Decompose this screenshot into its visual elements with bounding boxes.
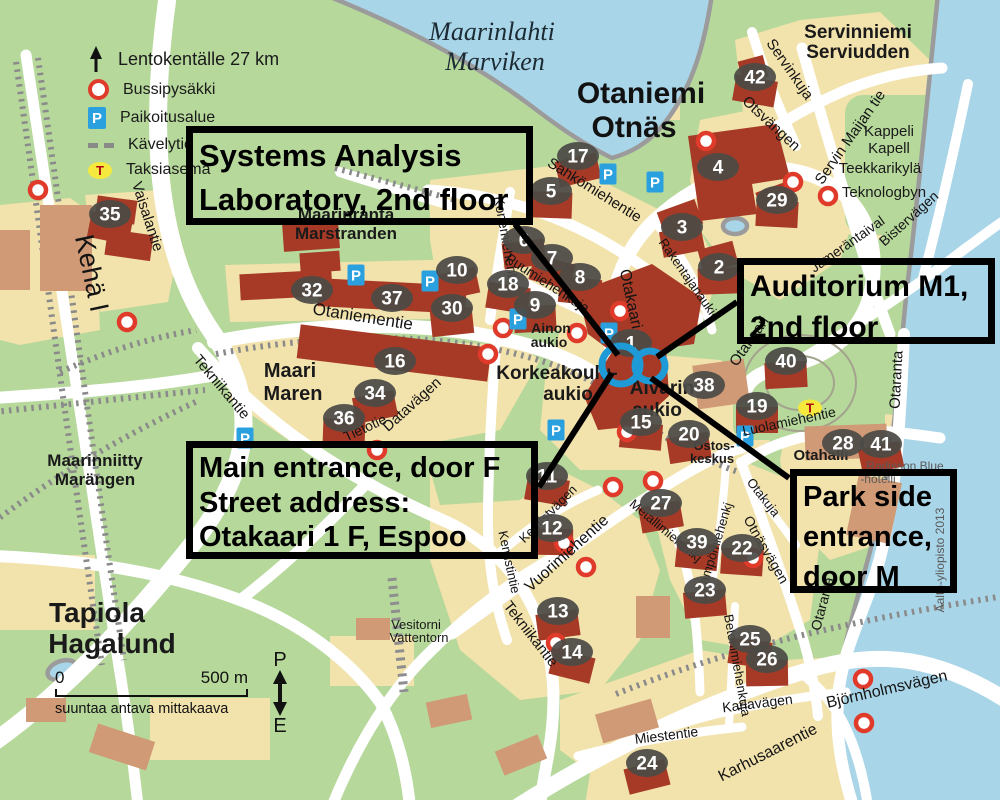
building-marker-13: 13 — [537, 597, 579, 625]
building-marker-39: 39 — [676, 528, 718, 556]
street-label: Otaranta — [886, 350, 906, 410]
building-marker-20: 20 — [668, 420, 710, 448]
svg-text:P: P — [551, 423, 561, 440]
svg-text:30: 30 — [441, 299, 462, 320]
svg-text:5: 5 — [546, 182, 557, 203]
bus-stop-icon — [569, 325, 585, 341]
north-arrow-icon — [88, 46, 104, 72]
building-marker-15: 15 — [620, 408, 662, 436]
bus-stop-icon — [578, 559, 594, 575]
svg-text:27: 27 — [650, 494, 671, 515]
svg-text:P: P — [425, 274, 435, 291]
building-marker-10: 10 — [436, 256, 478, 284]
svg-text:41: 41 — [870, 435, 892, 456]
svg-text:37: 37 — [381, 289, 402, 310]
place-label: Tapiola — [49, 597, 145, 628]
svg-text:12: 12 — [541, 519, 562, 540]
place-label: aukio — [543, 384, 593, 405]
building-marker-22: 22 — [721, 534, 763, 562]
place-label: Maren — [264, 383, 323, 405]
callout-line: 2nd floor — [744, 307, 988, 348]
callout-line: Park side — [797, 477, 950, 517]
building-marker-26: 26 — [746, 645, 788, 673]
bus-stop-icon — [785, 174, 801, 190]
svg-text:34: 34 — [364, 384, 386, 405]
svg-text:16: 16 — [384, 352, 405, 373]
legend-footpath-label: Kävelytie — [128, 136, 193, 154]
scale-bar: 0 500 m suuntaa antava mittakaava — [55, 668, 248, 717]
building-marker-2: 2 — [698, 253, 740, 281]
callout-systems-analysis-lab: Systems Analysis Laboratory, 2nd floor — [186, 126, 533, 225]
building-marker-16: 16 — [374, 347, 416, 375]
svg-text:39: 39 — [686, 533, 707, 554]
place-label: Marviken — [444, 47, 545, 76]
place-label: Teekkarikylä — [839, 160, 922, 177]
place-label: Otaniemi — [577, 77, 705, 110]
bus-stop-icon — [605, 479, 621, 495]
place-label: Maarinniitty — [47, 451, 143, 470]
place-label: Maarinlahti — [428, 17, 555, 46]
building-marker-36: 36 — [323, 404, 365, 432]
building-marker-28: 28 — [822, 429, 864, 457]
callout-line: Street address: — [193, 486, 531, 521]
callout-auditorium-m1: Auditorium M1, 2nd floor — [737, 258, 995, 344]
svg-text:15: 15 — [630, 413, 652, 434]
building-marker-24: 24 — [626, 749, 668, 777]
bus-stop-icon — [645, 473, 661, 489]
place-label: Kapell — [868, 140, 910, 157]
parking-icon: P — [348, 265, 365, 286]
svg-text:28: 28 — [832, 434, 853, 455]
svg-text:36: 36 — [333, 409, 354, 430]
building-marker-14: 14 — [551, 638, 593, 666]
building-marker-29: 29 — [756, 186, 798, 214]
building-marker-3: 3 — [661, 213, 703, 241]
svg-text:29: 29 — [766, 191, 787, 212]
bus-stop-icon — [119, 314, 135, 330]
campus-pond — [723, 218, 747, 234]
svg-text:4: 4 — [713, 158, 724, 179]
place-label: aukio — [531, 334, 568, 350]
parking-icon: P — [600, 164, 617, 185]
svg-text:13: 13 — [547, 602, 568, 623]
bus-stop-icon — [88, 79, 109, 100]
scale-distance: 500 m — [201, 668, 248, 688]
building-marker-38: 38 — [683, 371, 725, 399]
building-marker-17: 17 — [557, 142, 599, 170]
bus-stop-icon — [820, 188, 836, 204]
parking-icon: P — [548, 420, 565, 441]
svg-text:9: 9 — [530, 296, 541, 317]
bus-stop-icon — [495, 320, 511, 336]
svg-text:40: 40 — [775, 352, 796, 373]
compass: P E — [272, 650, 288, 736]
parking-icon: P — [647, 172, 664, 193]
compass-north-label: P — [273, 650, 286, 670]
building-marker-4: 4 — [697, 153, 739, 181]
map-canvas: PPPPPPPPPT Kehä IVaisalantieTekniikantie… — [0, 0, 1000, 800]
bus-stop-icon — [480, 346, 496, 362]
svg-text:42: 42 — [744, 68, 765, 89]
place-label: Maari — [264, 360, 316, 382]
building-marker-9: 9 — [514, 291, 556, 319]
place-label: Teknologbyn — [842, 184, 926, 201]
taxi-icon: T — [88, 162, 112, 179]
svg-text:17: 17 — [567, 147, 588, 168]
bus-stop-icon — [30, 182, 46, 198]
callout-line: door M — [797, 557, 950, 597]
svg-text:14: 14 — [561, 643, 583, 664]
place-label: Marstranden — [295, 224, 397, 243]
place-label: Kappeli — [864, 123, 914, 140]
place-label: keskus — [690, 451, 734, 466]
svg-text:10: 10 — [446, 261, 467, 282]
footpath-icon — [88, 143, 114, 148]
callout-main-entrance: Main entrance, door F Street address: Ot… — [186, 441, 538, 559]
building-marker-40: 40 — [765, 347, 807, 375]
callout-line: Laboratory, 2nd floor — [193, 178, 526, 222]
bus-stop-icon — [698, 133, 714, 149]
building-marker-19: 19 — [736, 392, 778, 420]
svg-text:3: 3 — [677, 218, 688, 239]
compass-arrow-icon — [272, 670, 288, 716]
legend-bus-label: Bussipysäkki — [123, 81, 215, 99]
svg-text:P: P — [351, 268, 361, 285]
place-label: Hagalund — [48, 628, 176, 659]
place-label: Servinniemi — [804, 22, 912, 43]
place-label: Vattentorn — [389, 630, 448, 645]
svg-text:2: 2 — [714, 258, 725, 279]
building-marker-30: 30 — [431, 294, 473, 322]
building-marker-35: 35 — [89, 200, 131, 228]
callout-line: Systems Analysis — [193, 134, 526, 178]
scale-zero: 0 — [55, 668, 64, 688]
svg-text:20: 20 — [678, 425, 699, 446]
svg-text:19: 19 — [746, 397, 767, 418]
compass-south-label: E — [273, 716, 286, 736]
svg-text:38: 38 — [693, 376, 714, 397]
svg-text:P: P — [650, 175, 660, 192]
callout-line: Main entrance, door F — [193, 451, 531, 486]
svg-text:35: 35 — [99, 205, 121, 226]
svg-text:24: 24 — [636, 754, 658, 775]
svg-text:18: 18 — [497, 275, 518, 296]
callout-line: Auditorium M1, — [744, 266, 988, 307]
building-marker-32: 32 — [291, 276, 333, 304]
svg-text:23: 23 — [694, 581, 715, 602]
building-marker-41: 41 — [860, 430, 902, 458]
callout-line: Otakaari 1 F, Espoo — [193, 520, 531, 555]
svg-text:32: 32 — [301, 281, 322, 302]
place-label: Serviudden — [806, 42, 909, 63]
svg-text:22: 22 — [731, 539, 752, 560]
building-marker-37: 37 — [371, 284, 413, 312]
parking-icon: P — [88, 107, 106, 129]
scale-caption: suuntaa antava mittakaava — [55, 701, 248, 717]
svg-text:26: 26 — [756, 650, 777, 671]
place-label: Otnäs — [591, 111, 676, 144]
place-label: Marängen — [55, 470, 135, 489]
legend-parking-label: Paikoitusalue — [120, 109, 215, 127]
callout-line: entrance, — [797, 517, 950, 557]
svg-text:P: P — [603, 167, 613, 184]
building-marker-27: 27 — [640, 489, 682, 517]
airport-distance-label: Lentokentälle 27 km — [118, 49, 279, 70]
building-marker-23: 23 — [684, 576, 726, 604]
bus-stop-icon — [856, 715, 872, 731]
scale-line — [55, 689, 248, 697]
svg-text:8: 8 — [575, 268, 586, 289]
parking-icon: P — [422, 271, 439, 292]
callout-park-side-entrance: Park side entrance, door M — [790, 469, 957, 593]
building-marker-42: 42 — [734, 63, 776, 91]
building-marker-34: 34 — [354, 379, 396, 407]
building-marker-5: 5 — [530, 177, 572, 205]
